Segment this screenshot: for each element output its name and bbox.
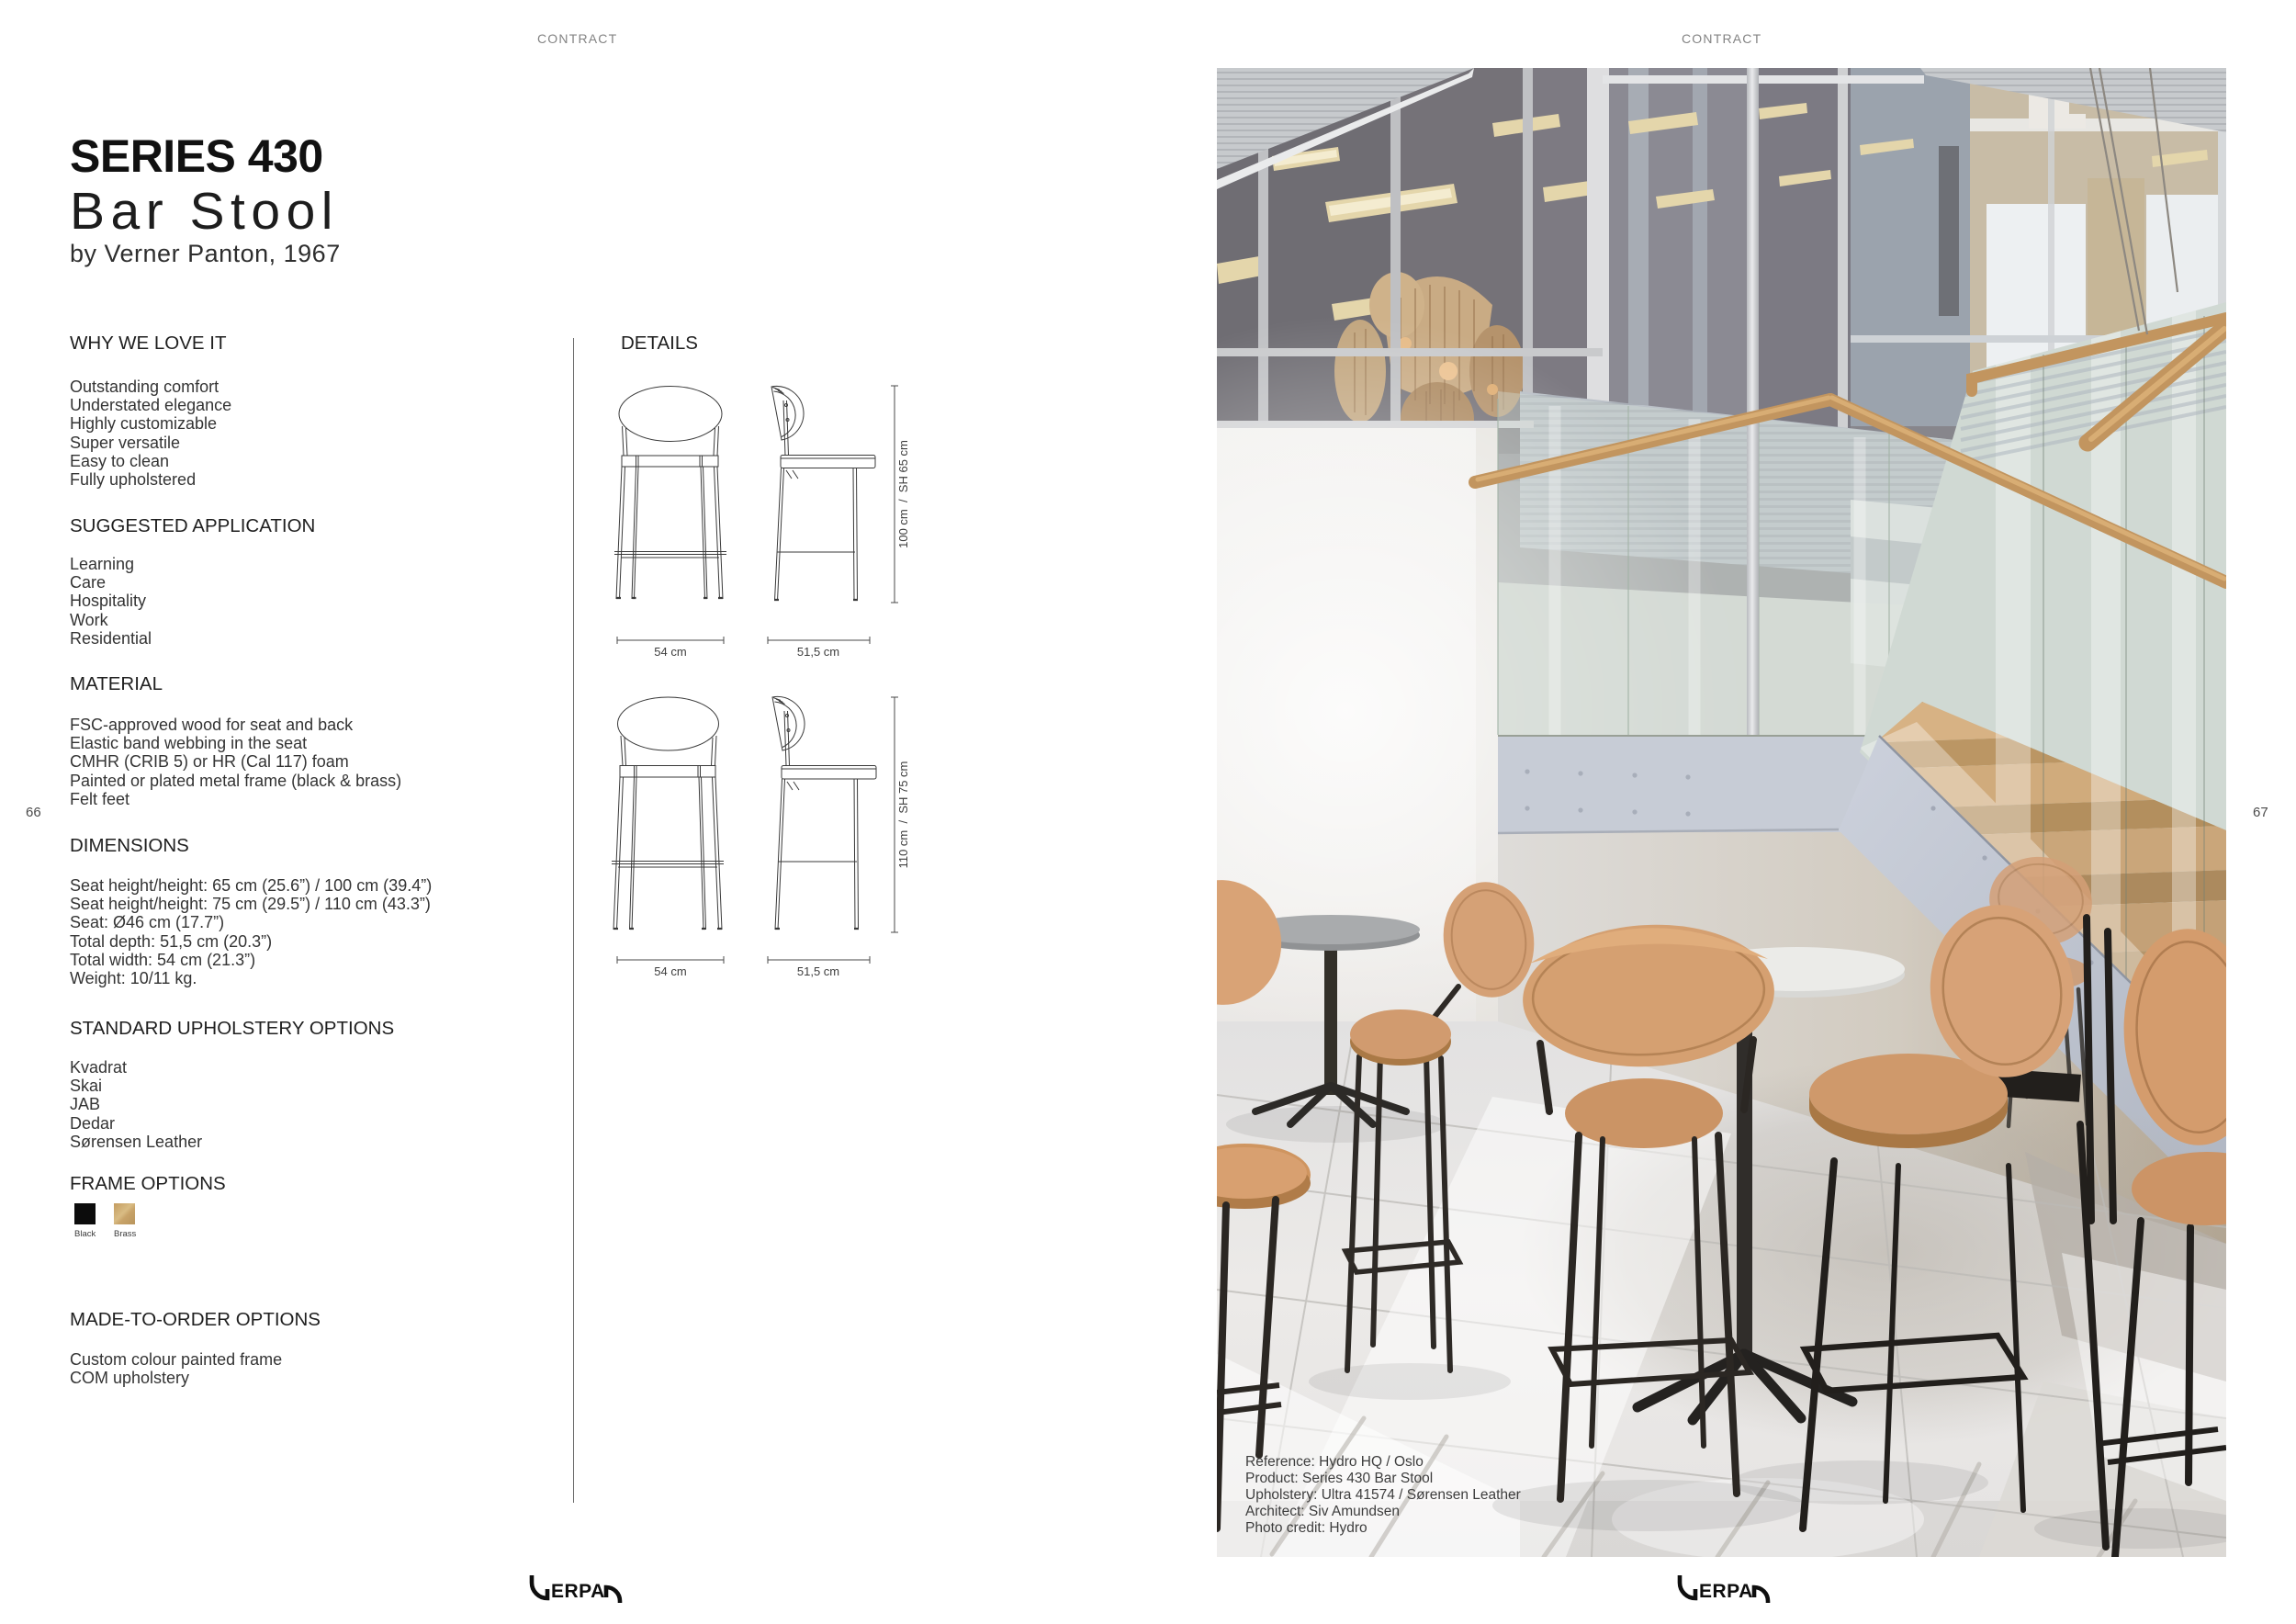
svg-text:100 cm / SH 65 cm: 100 cm / SH 65 cm	[896, 440, 910, 548]
svg-text:54 cm: 54 cm	[654, 964, 686, 978]
svg-text:ERPA: ERPA	[551, 1581, 605, 1602]
svg-text:51,5 cm: 51,5 cm	[797, 645, 839, 659]
svg-text:Reference: Hydro HQ / Oslo: Reference: Hydro HQ / Oslo	[1245, 1454, 1424, 1470]
svg-text:110 cm / SH 75 cm: 110 cm / SH 75 cm	[896, 761, 910, 869]
svg-text:ERPA: ERPA	[1699, 1581, 1753, 1602]
svg-text:51,5 cm: 51,5 cm	[797, 964, 839, 978]
svg-text:Product: Series 430 Bar Stool: Product: Series 430 Bar Stool	[1245, 1471, 1433, 1486]
svg-text:Upholstery: Ultra 41574 / Søre: Upholstery: Ultra 41574 / Sørensen Leath…	[1245, 1487, 1521, 1503]
svg-text:54 cm: 54 cm	[654, 645, 686, 659]
svg-text:Architect: Siv Amundsen: Architect: Siv Amundsen	[1245, 1504, 1400, 1519]
svg-text:Photo credit: Hydro: Photo credit: Hydro	[1245, 1520, 1367, 1536]
